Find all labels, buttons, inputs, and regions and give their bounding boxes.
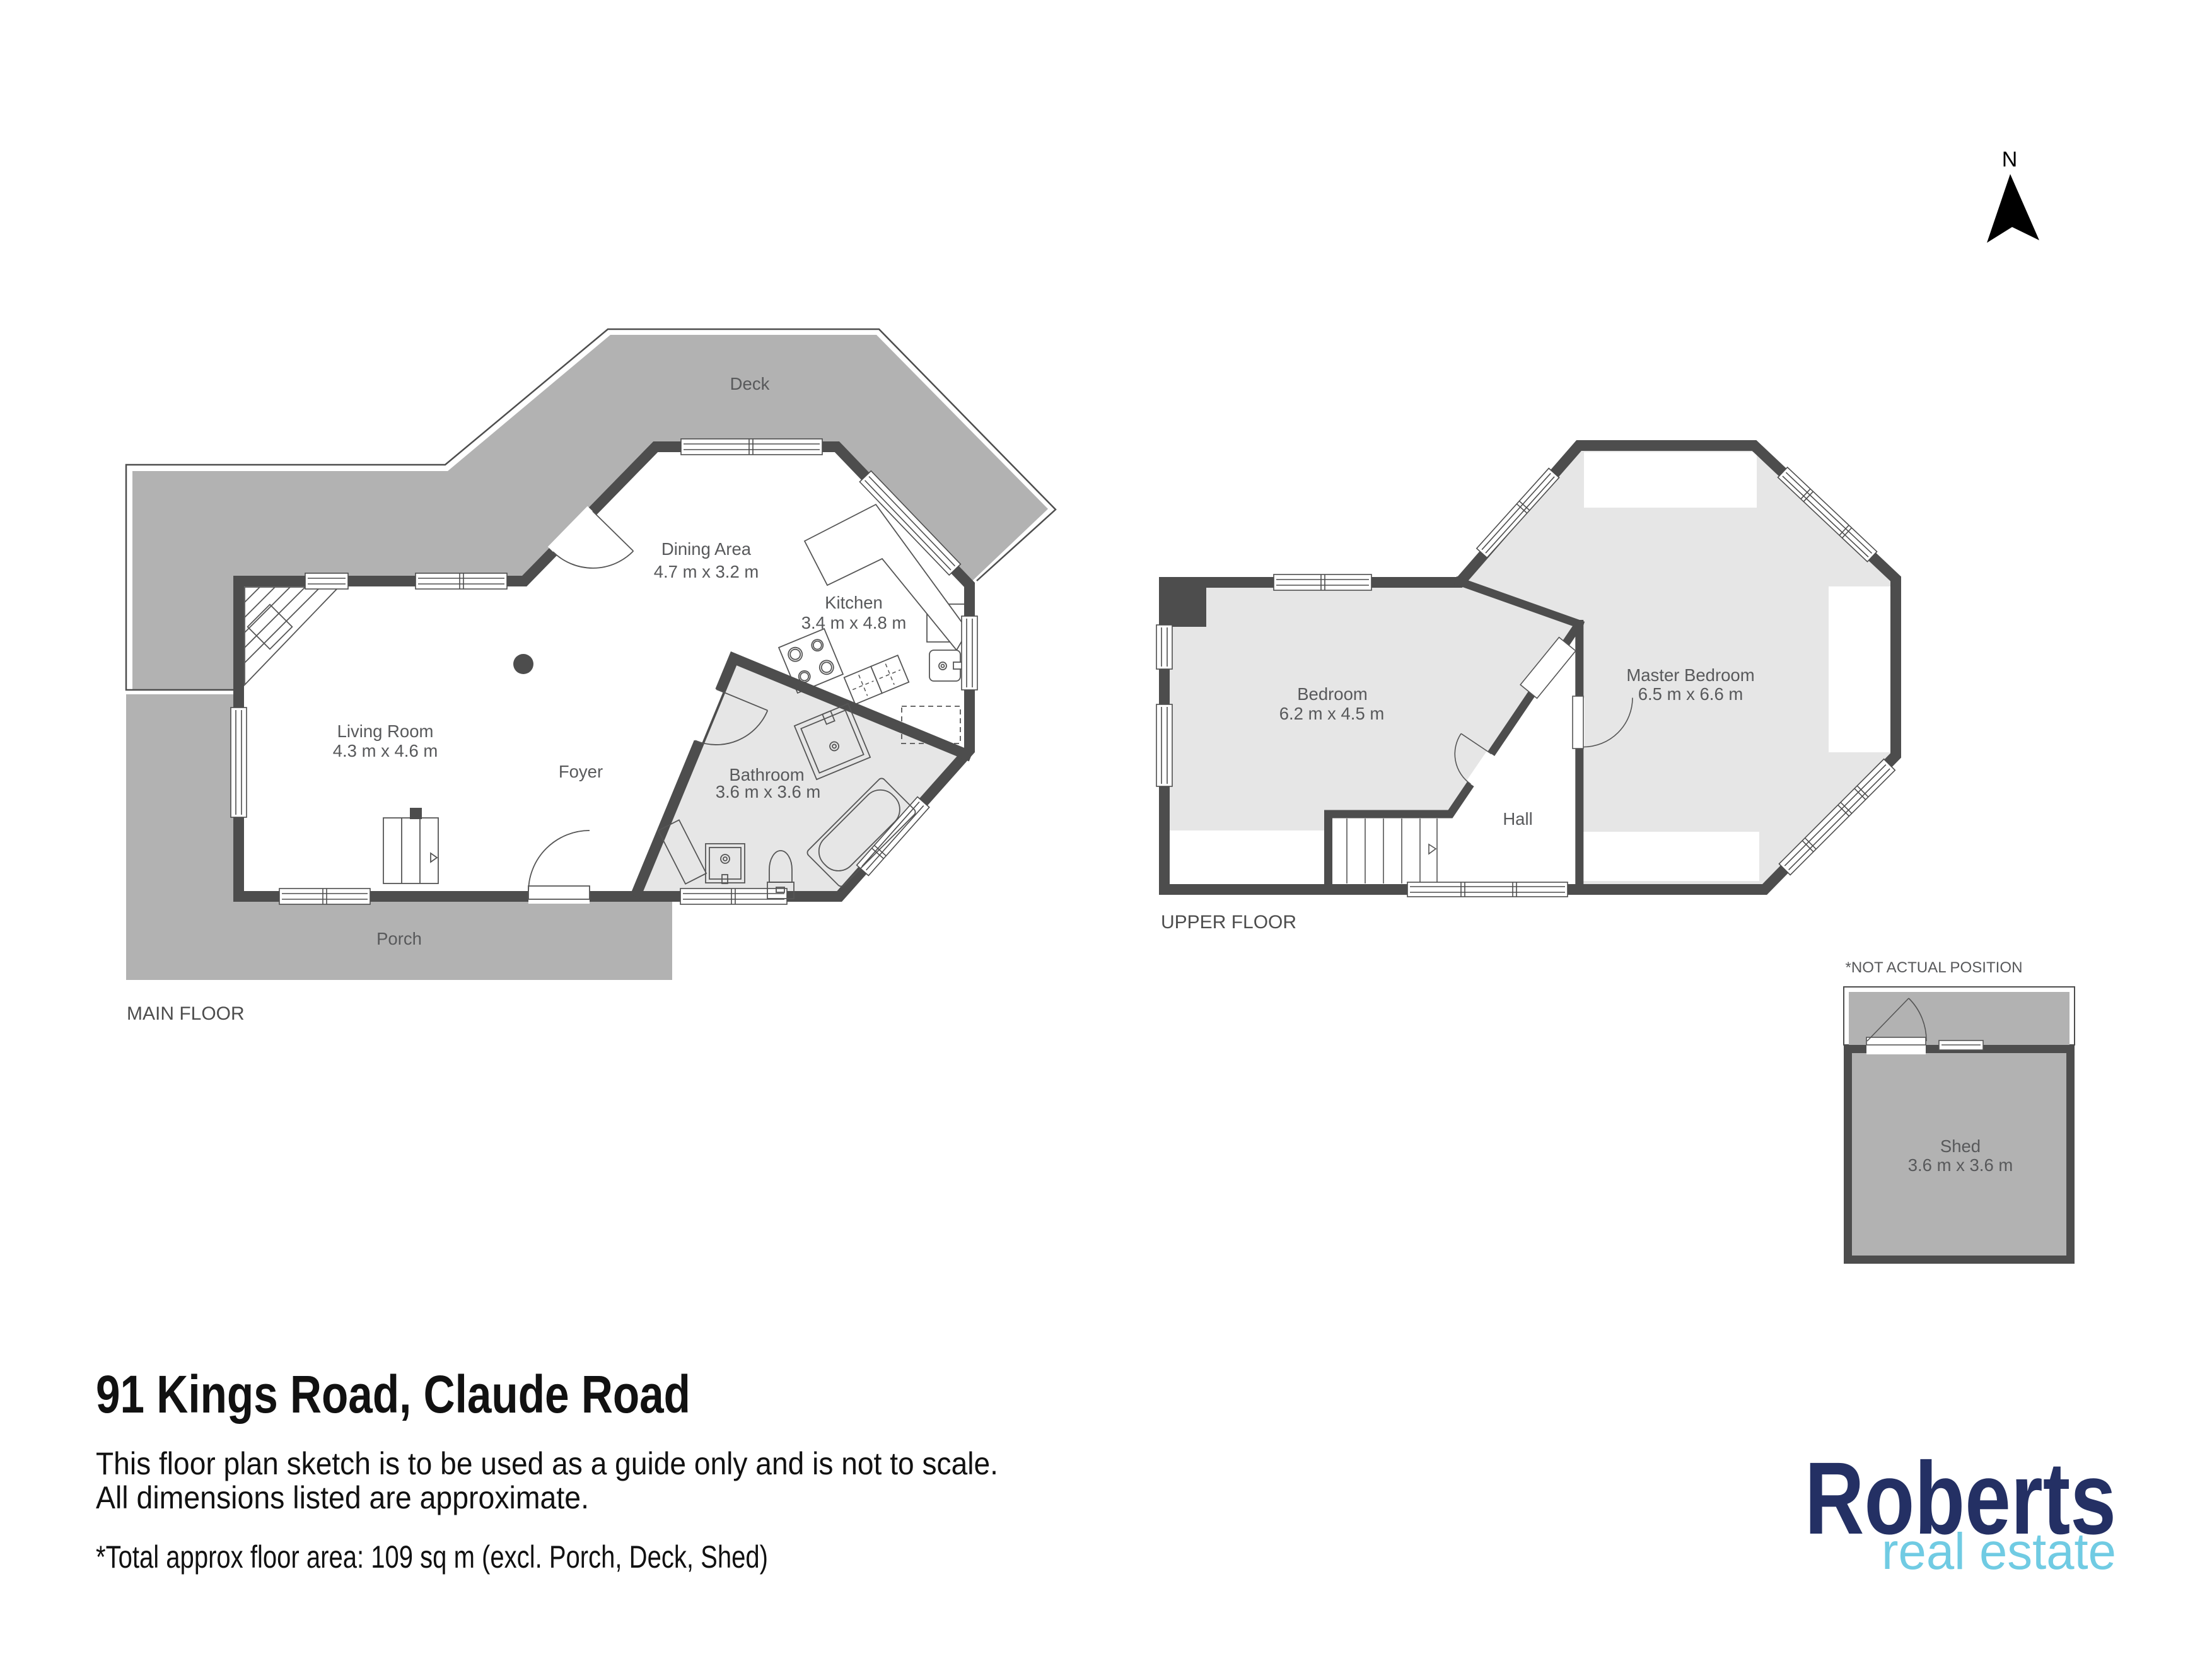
svg-text:91 Kings Road, Claude Road: 91 Kings Road, Claude Road [96, 1365, 690, 1424]
svg-text:UPPER FLOOR: UPPER FLOOR [1161, 912, 1296, 933]
svg-text:3.4 m x 4.8 m: 3.4 m x 4.8 m [801, 613, 907, 632]
svg-text:MAIN FLOOR: MAIN FLOOR [127, 1003, 245, 1024]
svg-text:*Total approx floor area: 109: *Total approx floor area: 109 sq m (excl… [96, 1539, 768, 1575]
svg-text:real estate: real estate [1882, 1523, 2116, 1580]
svg-text:6.2 m x 4.5 m: 6.2 m x 4.5 m [1279, 704, 1385, 723]
svg-text:Dining Area: Dining Area [661, 539, 752, 559]
svg-text:4.3 m x 4.6 m: 4.3 m x 4.6 m [333, 741, 438, 761]
svg-text:*NOT ACTUAL POSITION: *NOT ACTUAL POSITION [1846, 959, 2023, 976]
svg-text:3.6 m x 3.6 m: 3.6 m x 3.6 m [716, 782, 821, 801]
svg-text:Kitchen: Kitchen [825, 593, 883, 612]
svg-text:Living Room: Living Room [337, 721, 434, 741]
svg-text:All dimensions listed are appr: All dimensions listed are approximate. [96, 1480, 589, 1515]
svg-text:Porch: Porch [376, 929, 422, 948]
svg-text:Hall: Hall [1503, 809, 1532, 829]
svg-text:3.6 m x 3.6 m: 3.6 m x 3.6 m [1908, 1155, 2013, 1175]
svg-text:Deck: Deck [730, 374, 770, 393]
svg-text:Shed: Shed [1940, 1136, 1981, 1156]
svg-text:4.7 m x 3.2 m: 4.7 m x 3.2 m [654, 562, 759, 581]
svg-text:Master Bedroom: Master Bedroom [1626, 665, 1754, 685]
svg-text:Bedroom: Bedroom [1297, 684, 1368, 704]
svg-text:6.5 m x 6.6 m: 6.5 m x 6.6 m [1638, 684, 1743, 704]
svg-text:Foyer: Foyer [559, 762, 603, 781]
svg-text:N: N [2002, 148, 2018, 172]
svg-text:This floor plan sketch is to b: This floor plan sketch is to be used as … [96, 1446, 998, 1481]
